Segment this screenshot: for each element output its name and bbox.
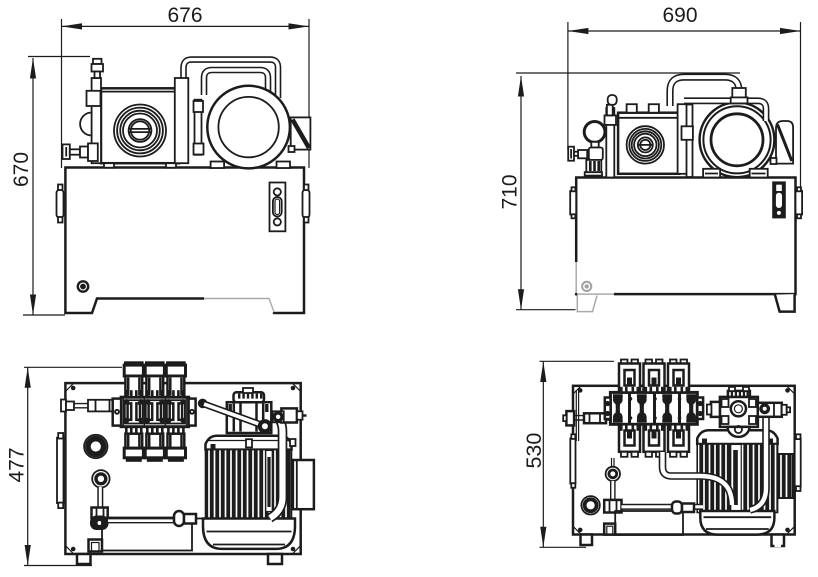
svg-text:690: 690 [662,4,697,27]
svg-text:477: 477 [5,447,28,482]
svg-text:710: 710 [499,174,522,209]
svg-text:670: 670 [10,152,33,187]
svg-text:676: 676 [167,4,202,27]
svg-text:530: 530 [522,433,546,469]
